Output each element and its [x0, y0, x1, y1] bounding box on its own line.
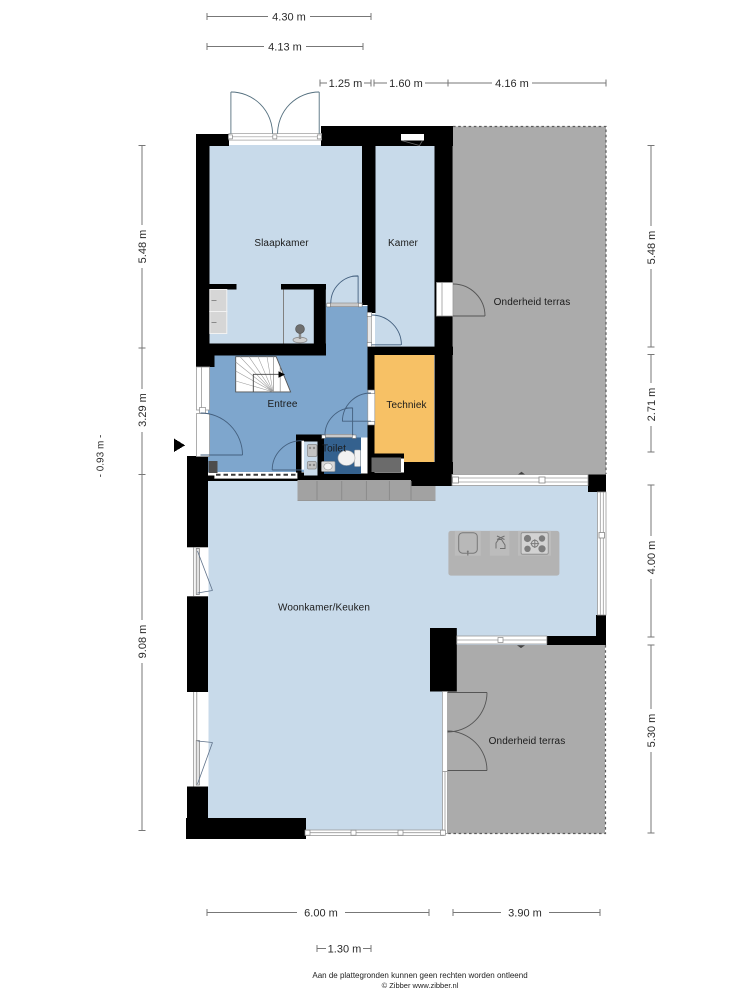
svg-text:Techniek: Techniek [386, 400, 427, 411]
svg-text:4.13 m: 4.13 m [268, 42, 302, 54]
svg-text:2.71 m: 2.71 m [646, 388, 658, 422]
svg-text:3.90 m: 3.90 m [508, 908, 542, 920]
svg-text:9.08 m: 9.08 m [137, 625, 149, 659]
svg-text:Aan de plattegronden kunnen ge: Aan de plattegronden kunnen geen rechten… [312, 971, 527, 980]
svg-text:1.30 m: 1.30 m [328, 944, 362, 956]
svg-text:3.29 m: 3.29 m [137, 393, 149, 427]
svg-text:4.00 m: 4.00 m [646, 541, 658, 575]
svg-text:5.48 m: 5.48 m [137, 230, 149, 264]
svg-text:Toilet: Toilet [322, 444, 346, 455]
svg-text:Onderheid terras: Onderheid terras [489, 736, 566, 747]
svg-text:1.25 m: 1.25 m [329, 78, 363, 90]
svg-text:Entree: Entree [267, 399, 297, 410]
svg-text:4.16 m: 4.16 m [495, 78, 529, 90]
svg-text:Slaapkamer: Slaapkamer [254, 238, 309, 249]
svg-text:1.60 m: 1.60 m [389, 78, 423, 90]
svg-text:- 0.93 m -: - 0.93 m - [96, 435, 107, 478]
svg-text:6.00 m: 6.00 m [304, 908, 338, 920]
svg-text:5.30 m: 5.30 m [646, 714, 658, 748]
svg-text:Kamer: Kamer [388, 238, 419, 249]
svg-text:Woonkamer/Keuken: Woonkamer/Keuken [278, 603, 370, 614]
svg-text:4.30 m: 4.30 m [272, 12, 306, 24]
svg-text:Onderheid terras: Onderheid terras [494, 297, 571, 308]
svg-text:5.48 m: 5.48 m [646, 231, 658, 265]
svg-text:© Zibber www.zibber.nl: © Zibber www.zibber.nl [382, 981, 459, 990]
